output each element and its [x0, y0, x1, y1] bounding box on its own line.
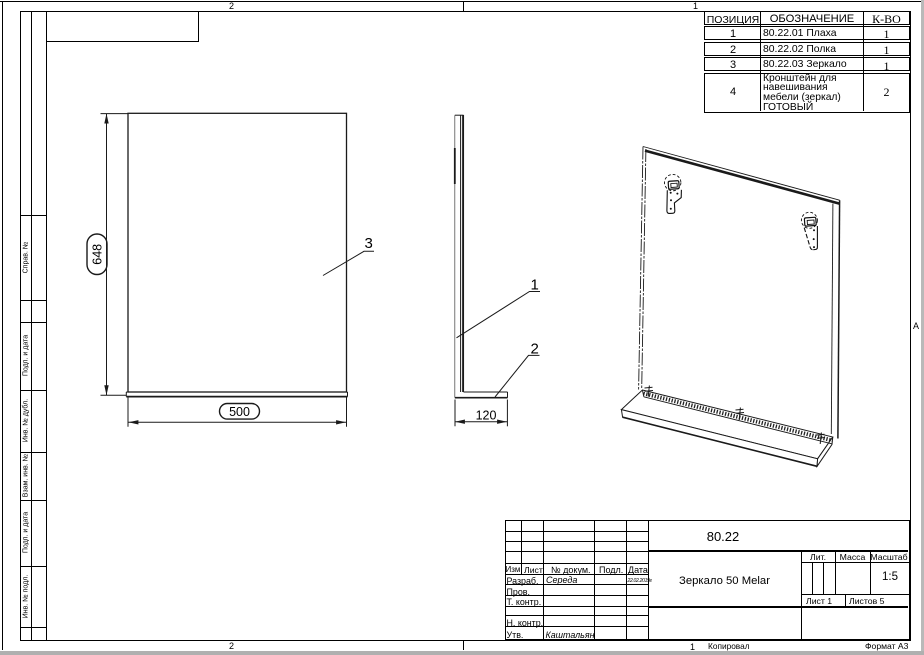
svg-text:500: 500 [229, 405, 250, 419]
svg-text:3: 3 [365, 235, 373, 252]
svg-text:1: 1 [531, 277, 539, 294]
svg-text:648: 648 [91, 244, 105, 265]
svg-text:2: 2 [531, 340, 539, 357]
svg-text:120: 120 [476, 409, 497, 423]
